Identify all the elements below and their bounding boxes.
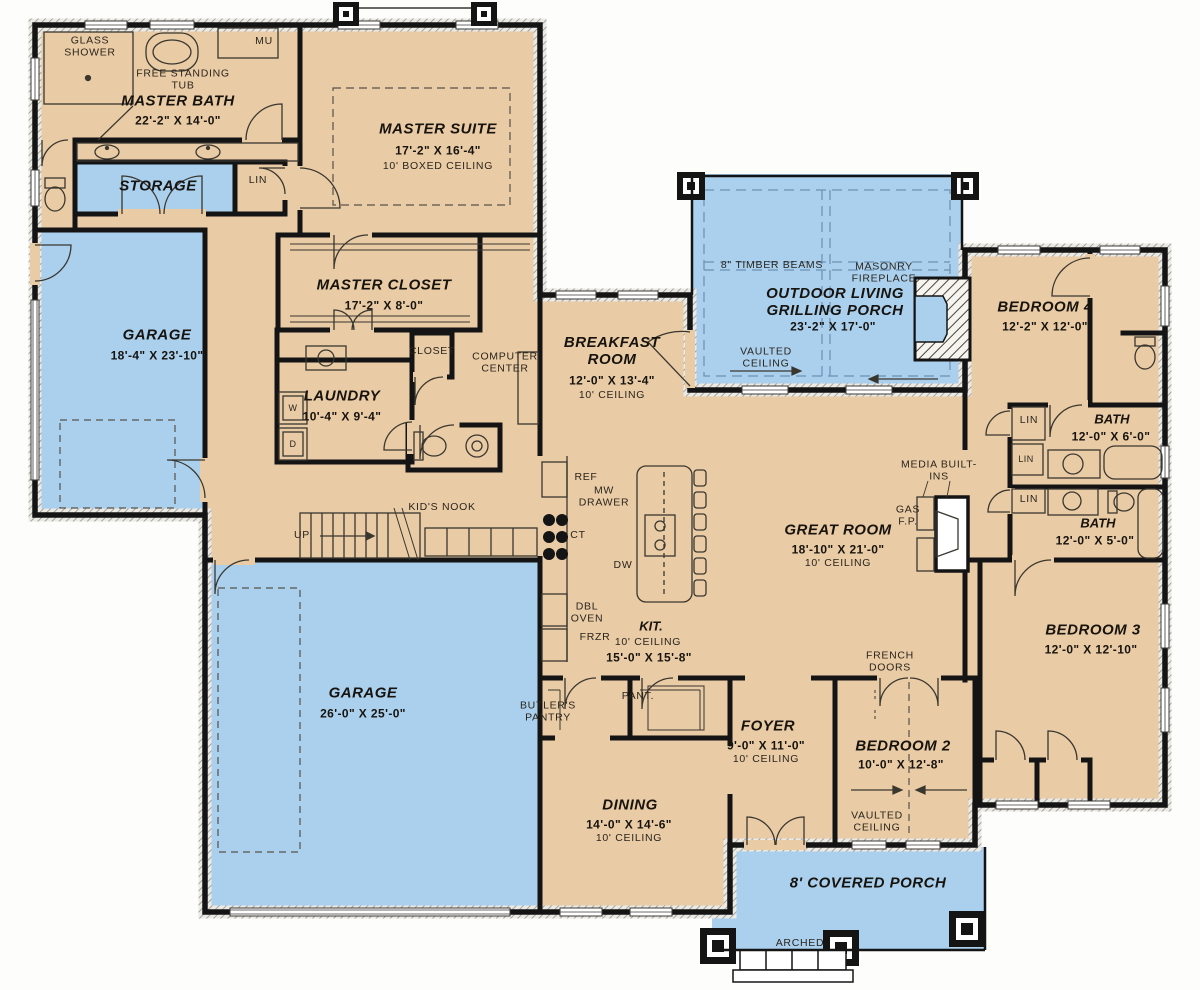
column-icon <box>333 2 359 26</box>
storage-floor <box>77 164 235 212</box>
column-icon <box>471 2 497 26</box>
garage1-overhead-door <box>31 300 39 480</box>
garage1-floor <box>37 232 203 513</box>
porch-steps <box>733 950 853 982</box>
column-icon <box>949 911 985 947</box>
floor-plan-page: GLASS SHOWER MU FREE STANDING TUB MASTER… <box>0 0 1200 990</box>
floor-plan-canvas <box>0 0 1200 990</box>
masonry-fireplace-block <box>915 278 970 360</box>
column-icon <box>700 928 736 964</box>
garage2-overhead-door <box>230 908 510 916</box>
garage2-floor <box>207 562 538 910</box>
stairs <box>300 508 420 560</box>
